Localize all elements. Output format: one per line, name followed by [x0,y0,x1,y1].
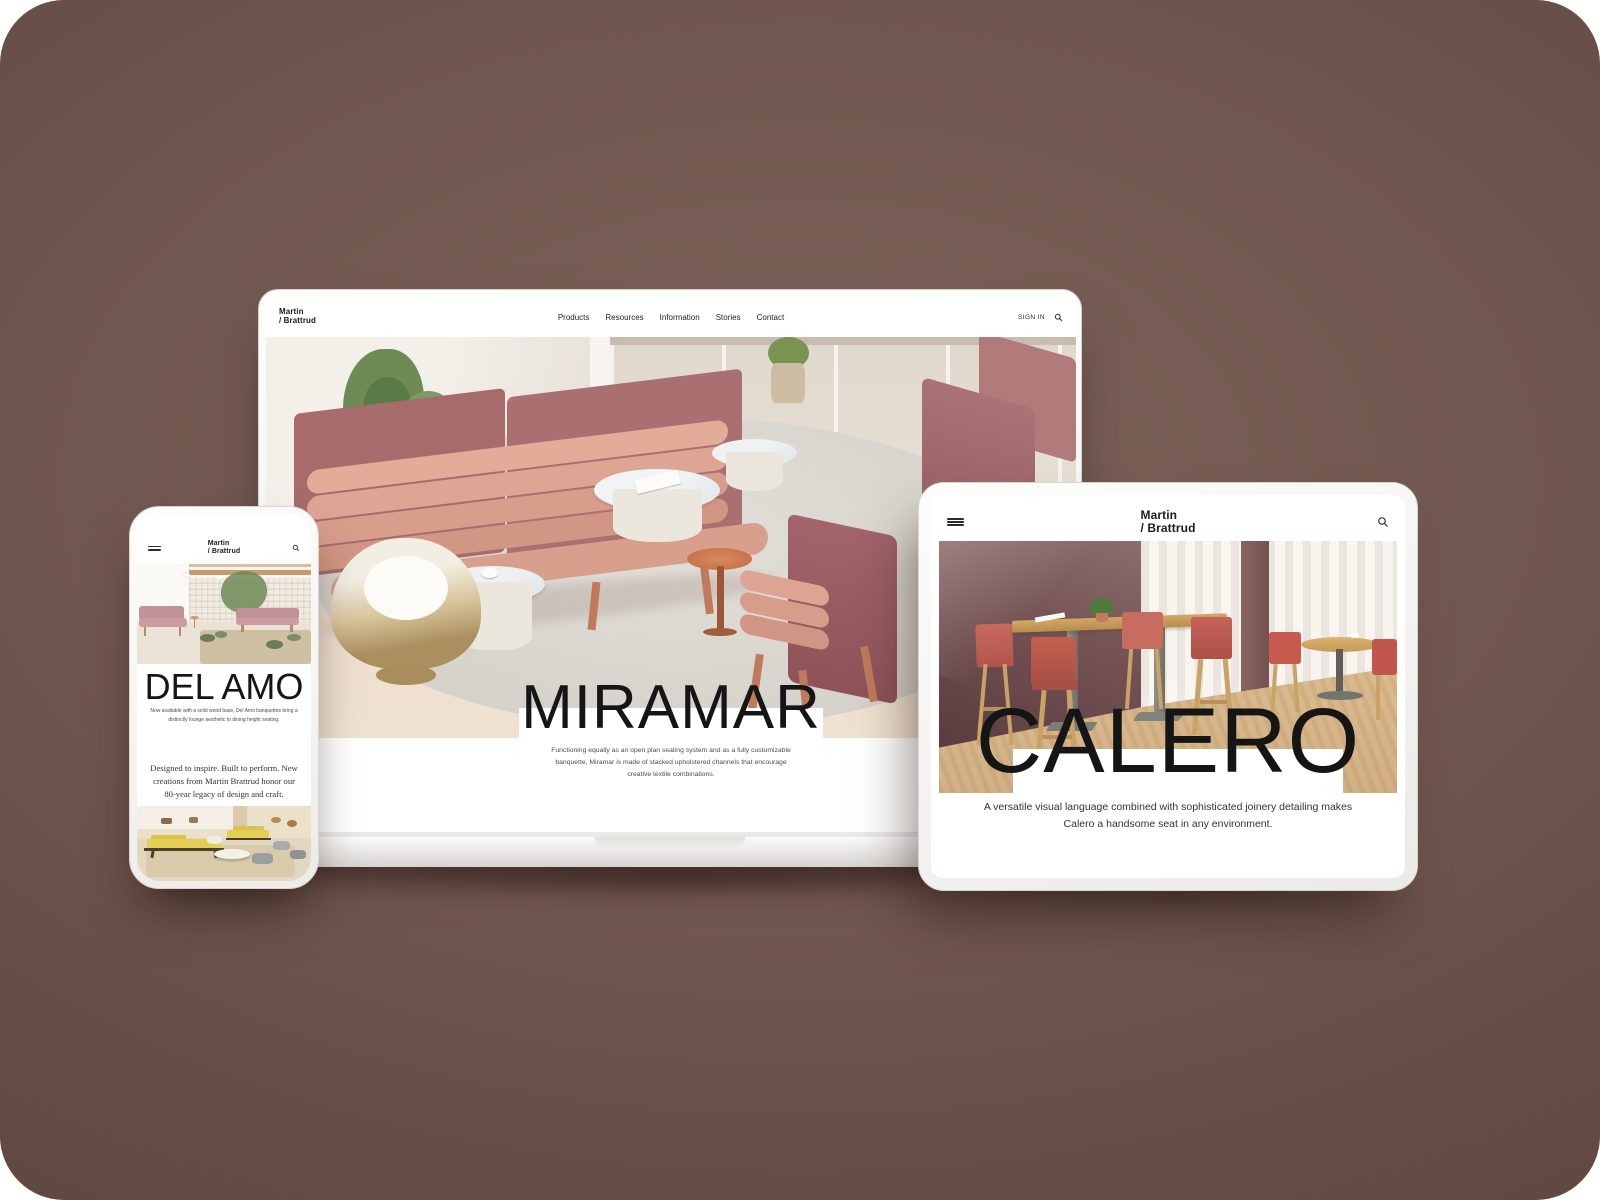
phone-hero-title: DEL AMO [137,669,311,705]
search-icon[interactable] [292,544,300,552]
green-pouf [200,634,216,642]
pillar [1241,541,1268,702]
search-icon[interactable] [1054,313,1063,322]
brand-line2: / Brattrud [279,316,316,325]
tablet-hero-title: CALERO [931,695,1405,787]
phone-quote: Designed to inspire. Built to perform. N… [147,762,301,801]
phone-lobby-image [137,806,311,881]
pendant-light [184,573,190,577]
tablet-screen: Martin/ Brattrud [931,495,1405,878]
cream-lounge-chair [331,538,481,690]
brand-logo[interactable]: Martin/ Brattrud [279,308,316,326]
laptop-site-header: Martin/ Brattrud Products Resources Info… [266,297,1076,337]
menu-icon[interactable] [148,546,161,551]
tablet-hero-description: A versatile visual language combined wit… [973,799,1363,834]
dining-chair [1269,632,1301,665]
brand-logo[interactable]: Martin/ Brattrud [1141,509,1196,536]
laptop-base-notch [595,837,745,848]
tablet-device: Martin/ Brattrud [918,482,1418,891]
sign-in-link[interactable]: SIGN IN [1018,314,1045,321]
nav-products[interactable]: Products [558,313,590,322]
mockup-stage: Martin/ Brattrud Products Resources Info… [0,0,1600,1200]
phone-screen: Martin/ Brattrud [137,514,311,881]
tablet-site-header: Martin/ Brattrud [947,509,1389,535]
nav-information[interactable]: Information [660,313,700,322]
bar-stool [975,624,1013,668]
phone-hero-description: Now available with a solid wood base, De… [148,707,300,724]
nav-stories[interactable]: Stories [716,313,741,322]
gray-chair [273,841,290,850]
phone-hero-image [137,564,311,664]
nav-contact[interactable]: Contact [757,313,785,322]
phone-device: Martin/ Brattrud [129,506,319,889]
laptop-hero-description: Functioning equally as an open plan seat… [545,745,797,781]
brand-line1: Martin [279,307,304,316]
phone-site-header: Martin/ Brattrud [148,536,300,560]
search-icon[interactable] [1377,516,1389,528]
menu-icon[interactable] [947,518,964,526]
brand-logo[interactable]: Martin/ Brattrud [208,540,241,556]
nav-resources[interactable]: Resources [605,313,643,322]
laptop-nav: Products Resources Information Stories C… [558,313,784,322]
